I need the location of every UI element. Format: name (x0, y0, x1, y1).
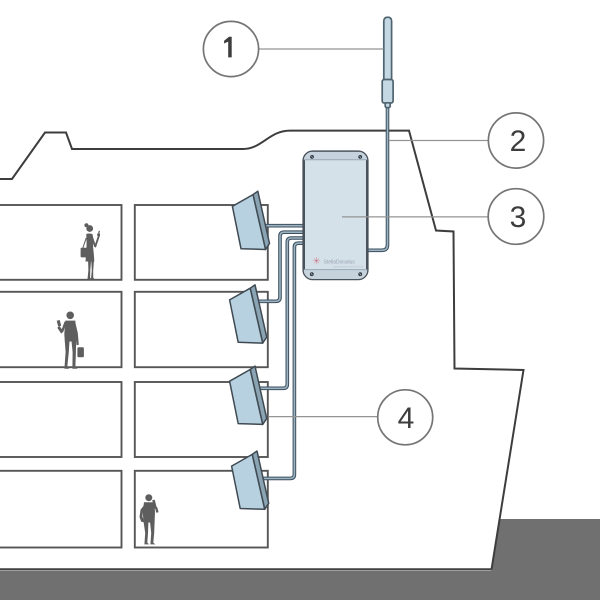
svg-text:2: 2 (510, 125, 527, 158)
svg-text:3: 3 (510, 201, 527, 234)
svg-text:communications beyond limits: communications beyond limits (333, 265, 364, 268)
svg-text:StellaDoradus: StellaDoradus (324, 260, 356, 266)
svg-text:4: 4 (398, 402, 415, 435)
